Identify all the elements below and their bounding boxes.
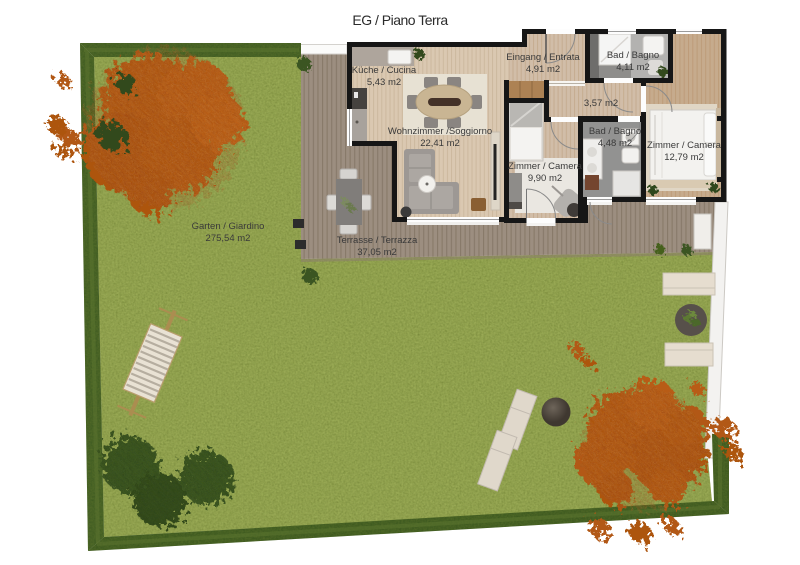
svg-text:3,57 m2: 3,57 m2	[584, 98, 618, 109]
svg-text:22,41 m2: 22,41 m2	[420, 138, 460, 149]
svg-text:Zimmer / Camera: Zimmer / Camera	[508, 161, 583, 172]
svg-text:275,54 m2: 275,54 m2	[206, 233, 251, 244]
svg-text:4,48 m2: 4,48 m2	[598, 138, 632, 149]
svg-text:EG / Piano Terra: EG / Piano Terra	[352, 12, 448, 28]
svg-text:4,11 m2: 4,11 m2	[616, 62, 650, 73]
svg-text:Terrasse / Terrazza: Terrasse / Terrazza	[337, 235, 418, 246]
svg-text:4,91 m2: 4,91 m2	[526, 64, 560, 75]
svg-text:9,90 m2: 9,90 m2	[528, 173, 562, 184]
svg-text:12,79 m2: 12,79 m2	[664, 152, 704, 163]
svg-text:Küche / Cucina: Küche / Cucina	[352, 65, 417, 76]
svg-text:Bad / Bagno: Bad / Bagno	[607, 50, 659, 61]
svg-text:Zimmer / Camera: Zimmer / Camera	[647, 140, 722, 151]
svg-text:Wohnzimmer /Soggiorno: Wohnzimmer /Soggiorno	[388, 126, 492, 137]
svg-text:Eingang / Entrata: Eingang / Entrata	[506, 52, 580, 63]
svg-text:37,05 m2: 37,05 m2	[357, 247, 397, 258]
svg-text:5,43 m2: 5,43 m2	[367, 77, 401, 88]
svg-text:Garten / Giardino: Garten / Giardino	[192, 221, 265, 232]
svg-text:Bad / Bagno: Bad / Bagno	[589, 126, 641, 137]
